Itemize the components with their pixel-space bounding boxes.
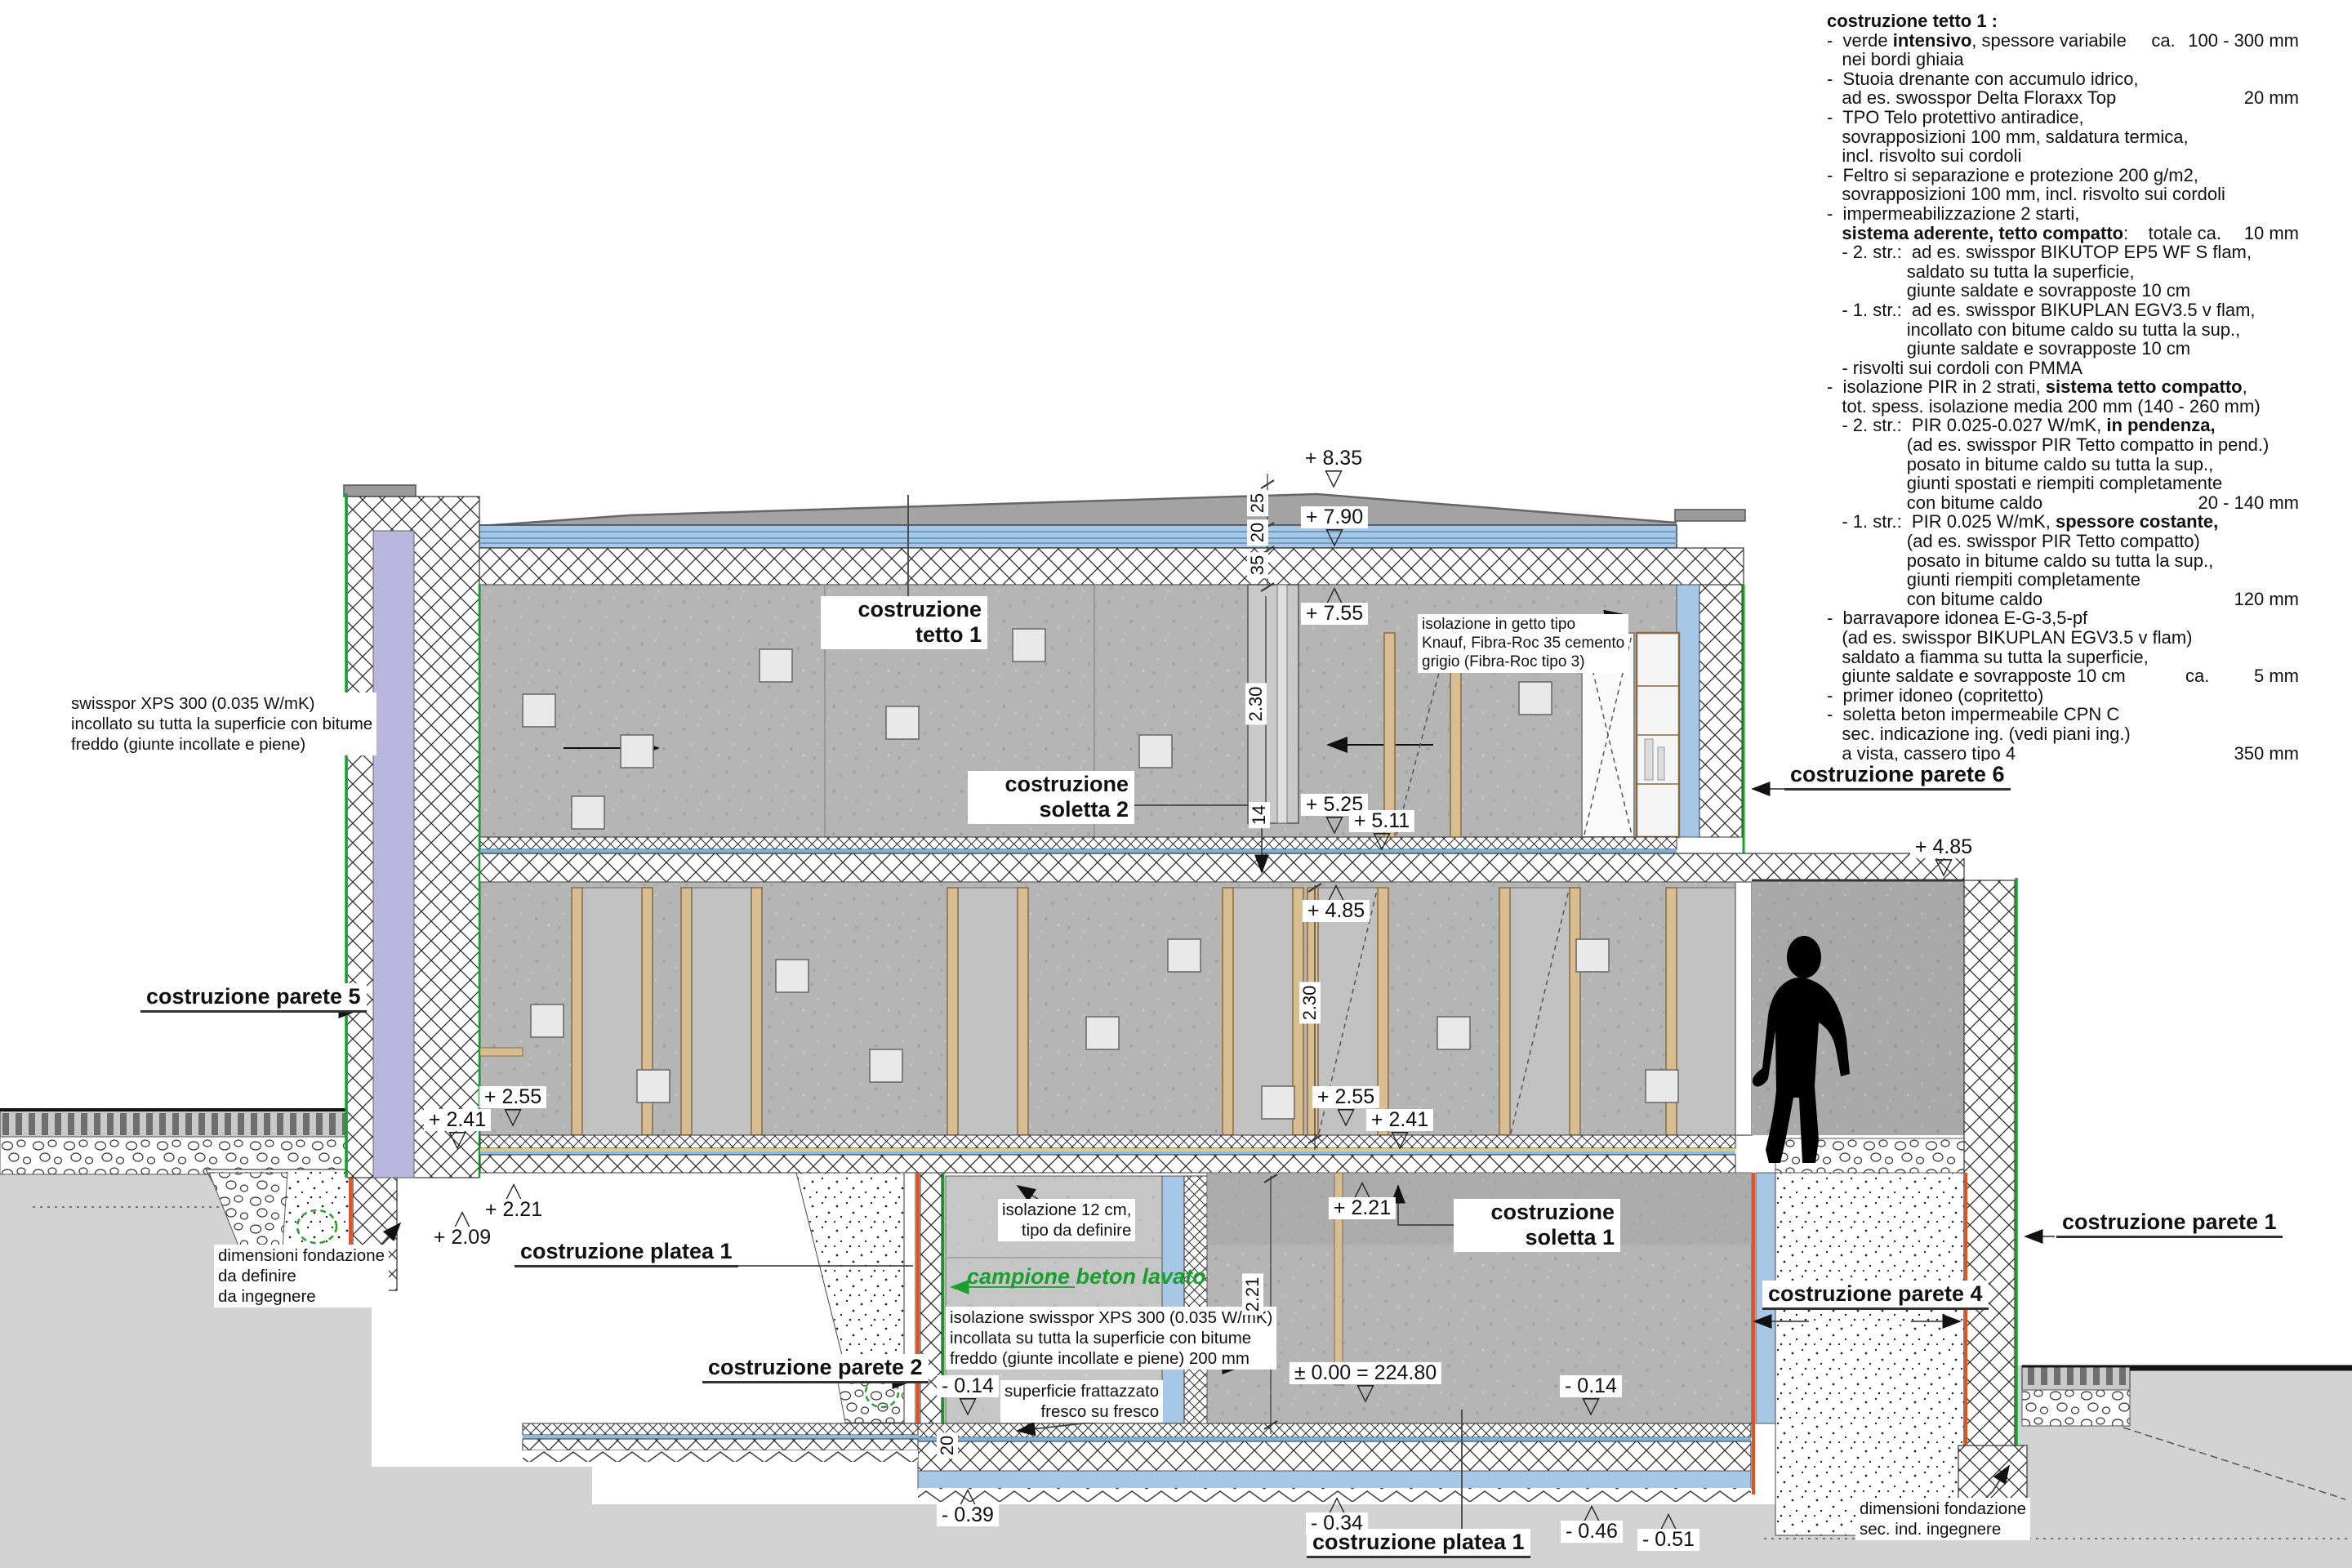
spec-line: sec. indicazione ing. (vedi piani ing.) [1827, 724, 2299, 744]
label-costruzione-parete-5: costruzione parete 5 [140, 983, 367, 1013]
recess-box [572, 796, 604, 829]
spec-line: sovrapposizioni 100 mm, incl. risvolto s… [1827, 185, 2299, 204]
spec-line: - TPO Telo protettivo antiradice, [1827, 108, 2299, 127]
spec-line: saldato a fiamma su tutta la superficie, [1827, 648, 2299, 667]
spec-line: con bitume caldo120 mm [1827, 590, 2299, 609]
dimension-text: 2.21 [1242, 1274, 1263, 1316]
label-costruzione-platea-1-left: costruzione platea 1 [514, 1238, 738, 1267]
elevation-marker: + 2.41▽ [424, 1109, 491, 1147]
elevation-marker: △+ 2.21 [1329, 1181, 1396, 1219]
elevation-marker: ± 0.00 = 224.80▽ [1290, 1362, 1441, 1401]
annotation-fondazione-left: dimensioni fondazione da definire da ing… [214, 1245, 389, 1307]
door-frame [1499, 888, 1580, 1135]
recess-box [1013, 629, 1045, 661]
elevation-marker: △- 0.39 [937, 1488, 999, 1526]
elevation-marker: - 0.14▽ [937, 1375, 999, 1414]
elevation-marker: △- 0.34 [1306, 1496, 1368, 1535]
elevation-marker: △+ 2.09 [429, 1210, 496, 1249]
spec-line: con bitume caldo20 - 140 mm [1827, 493, 2299, 513]
recess-box [523, 694, 555, 727]
label-costruzione-parete-4: costruzione parete 4 [1762, 1281, 1989, 1310]
mid-slab [376, 837, 1964, 882]
elevation-marker: △+ 4.85 [1303, 884, 1370, 922]
recess-box [759, 649, 792, 682]
dimension-text: 20 [1247, 519, 1268, 546]
spec-line: a vista, cassero tipo 4350 mm [1827, 744, 2299, 764]
annotation-isolazione-getto: isolazione in getto tipo Knauf, Fibra-Ro… [1418, 614, 1628, 673]
roof-assembly [344, 485, 1745, 585]
spec-line: giunti riempiti completamente [1827, 570, 2299, 590]
label-costruzione-parete-6: costruzione parete 6 [1784, 761, 2011, 791]
dimension-text: 25 [1247, 490, 1268, 516]
recess-box [1139, 735, 1172, 768]
spec-line: - Feltro si separazione e protezione 200… [1827, 166, 2299, 185]
recess-box [1519, 682, 1552, 715]
wall-divider [1735, 882, 1752, 1135]
dimension-text: 14 [1249, 802, 1270, 828]
recess-box [621, 735, 653, 768]
spec-line: - 1. str.: ad es. swisspor BIKUPLAN EGV3… [1827, 301, 2299, 320]
annotation-isolazione-12cm: isolazione 12 cm, tipo da definire [998, 1199, 1135, 1241]
spec-line: - 2. str.: ad es. swisspor BIKUTOP EP5 W… [1827, 243, 2299, 262]
recess-box [531, 1004, 563, 1037]
roof-spec-block: costruzione tetto 1 : - verde intensivo,… [1827, 11, 2299, 763]
annotation-isolazione-xps-basement: isolazione swisspor XPS 300 (0.035 W/mK)… [946, 1307, 1276, 1370]
ground-floor-slab [480, 1135, 1735, 1173]
spec-line: - barravapore idonea E-G-3,5-pf [1827, 608, 2299, 628]
dimension-text: 35 [1247, 552, 1268, 578]
label-costruzione-soletta-1: costruzione soletta 1 [1454, 1199, 1620, 1252]
dimension-text: 20 [937, 1432, 958, 1459]
spec-line: - verde intensivo, spessore variabile ca… [1827, 31, 2299, 51]
annotation-campione-beton-lavato: campione beton lavato [962, 1264, 1211, 1291]
recess-box [1086, 1017, 1119, 1049]
spec-line: incollato con bitume caldo su tutta la s… [1827, 320, 2299, 340]
annotation-xps-left: swisspor XPS 300 (0.035 W/mK) incollato … [67, 693, 376, 755]
spec-line: (ad es. swisspor BIKUPLAN EGV3.5 v flam) [1827, 628, 2299, 648]
dimension-text: 2.30 [1245, 684, 1267, 725]
elevation-marker: △- 0.46 [1561, 1504, 1623, 1543]
spec-line: - 2. str.: PIR 0.025-0.027 W/mK, in pend… [1827, 416, 2299, 435]
spec-line: ad es. swosspor Delta Floraxx Top20 mm [1827, 88, 2299, 108]
spec-line: - soletta beton impermeabile CPN C [1827, 705, 2299, 724]
xps-insulation-strip [373, 531, 414, 1178]
recess-box [870, 1049, 902, 1082]
recess-box [1168, 939, 1200, 972]
spec-line: posato in bitume caldo su tutta la sup., [1827, 551, 2299, 571]
label-costruzione-soletta-2: costruzione soletta 2 [968, 771, 1134, 824]
spec-line: nei bordi ghiaia [1827, 50, 2299, 69]
spec-line: - risvolti sui cordoli con PMMA [1827, 359, 2299, 378]
elevation-marker: △- 0.51 [1637, 1512, 1699, 1551]
elevation-marker: + 2.41▽ [1366, 1109, 1433, 1147]
spec-line: (ad es. swisspor PIR Tetto compatto in p… [1827, 435, 2299, 455]
spec-line: sovrapposizioni 100 mm, saldatura termic… [1827, 127, 2299, 147]
label-costruzione-parete-1: costruzione parete 1 [2056, 1209, 2283, 1238]
recess-box [1576, 939, 1609, 972]
architectural-section-drawing: costruzione tetto 1 : - verde intensivo,… [0, 0, 2352, 1568]
spec-line: sistema aderente, tetto compatto: totale… [1827, 224, 2299, 243]
recess-box [1262, 1086, 1294, 1119]
spec-line: tot. spess. isolazione media 200 mm (140… [1827, 397, 2299, 416]
label-costruzione-parete-2: costruzione parete 2 [702, 1354, 929, 1383]
elevation-marker: + 7.90▽ [1301, 506, 1368, 545]
spec-line: saldato su tutta la superficie, [1827, 262, 2299, 282]
spec-line: giunte saldate e sovrapposte 10 cm ca.5 … [1827, 666, 2299, 686]
recess-box [1437, 1017, 1470, 1049]
spec-line: giunte saldate e sovrapposte 10 cm [1827, 281, 2299, 301]
elevation-marker: + 8.35▽ [1300, 448, 1367, 486]
spec-line: - isolazione PIR in 2 strati, sistema te… [1827, 377, 2299, 397]
spec-line: giunti spostati e riempiti completamente [1827, 474, 2299, 493]
annotation-fondazione-right: dimensioni fondazione sec. ind. ingegner… [1855, 1498, 2030, 1540]
door-frame [681, 888, 762, 1135]
door-frame [1384, 633, 1395, 837]
spec-line: posato in bitume caldo su tutta la sup., [1827, 455, 2299, 474]
backfill [1775, 1173, 1964, 1535]
recess-box [886, 706, 919, 739]
spec-title: costruzione tetto 1 : [1827, 11, 2299, 31]
elevation-marker: △+ 7.55 [1301, 586, 1368, 625]
left-exterior-wall [346, 493, 479, 1178]
roof-waterproofing-layer [414, 525, 1677, 548]
spec-line: - impermeabilizzazione 2 starti, [1827, 204, 2299, 224]
spec-line: (ad es. swisspor PIR Tetto compatto) [1827, 532, 2299, 551]
dimension-text: 2.30 [1299, 982, 1321, 1024]
elevation-marker: + 4.85▽ [1910, 836, 1977, 875]
spec-line: - 1. str.: PIR 0.025 W/mK, spessore cost… [1827, 512, 2299, 532]
elevation-marker: + 5.11▽ [1349, 810, 1414, 849]
door-frame [947, 888, 1028, 1135]
basement-xps-strip [1162, 1176, 1184, 1433]
right-retaining-wall [1958, 878, 2027, 1534]
spec-line: - Stuoia drenante con accumulo idrico, [1827, 69, 2299, 89]
recess-box [637, 1070, 670, 1102]
recess-box [776, 960, 808, 992]
spec-line: giunte saldate e sovrapposte 10 cm [1827, 339, 2299, 359]
annotation-superficie-frattazzato: superficie frattazzato fresco su fresco [1000, 1380, 1163, 1423]
spec-line: incl. risvolto sui cordoli [1827, 146, 2299, 166]
label-costruzione-tetto-1: costruzione tetto 1 [821, 596, 987, 649]
elevation-marker: - 0.14▽ [1560, 1375, 1622, 1414]
recess-box [1646, 1070, 1678, 1102]
roof-insulation-layer [414, 548, 1744, 585]
spec-line: - primer idoneo (copritetto) [1827, 686, 2299, 706]
